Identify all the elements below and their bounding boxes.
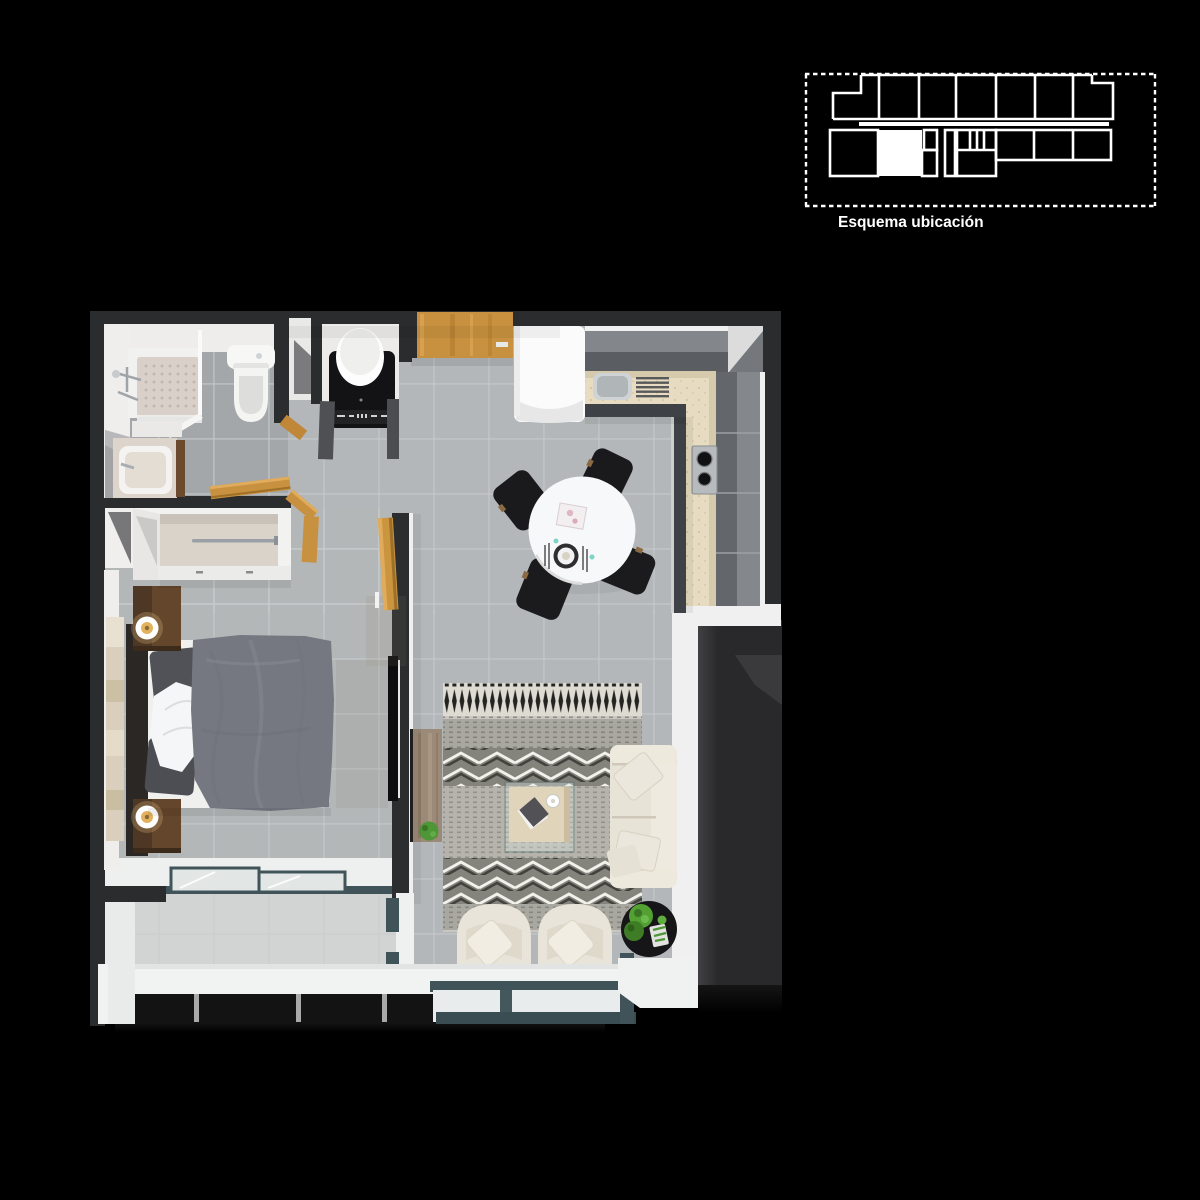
svg-text:Esquema ubicación: Esquema ubicación (838, 214, 984, 231)
